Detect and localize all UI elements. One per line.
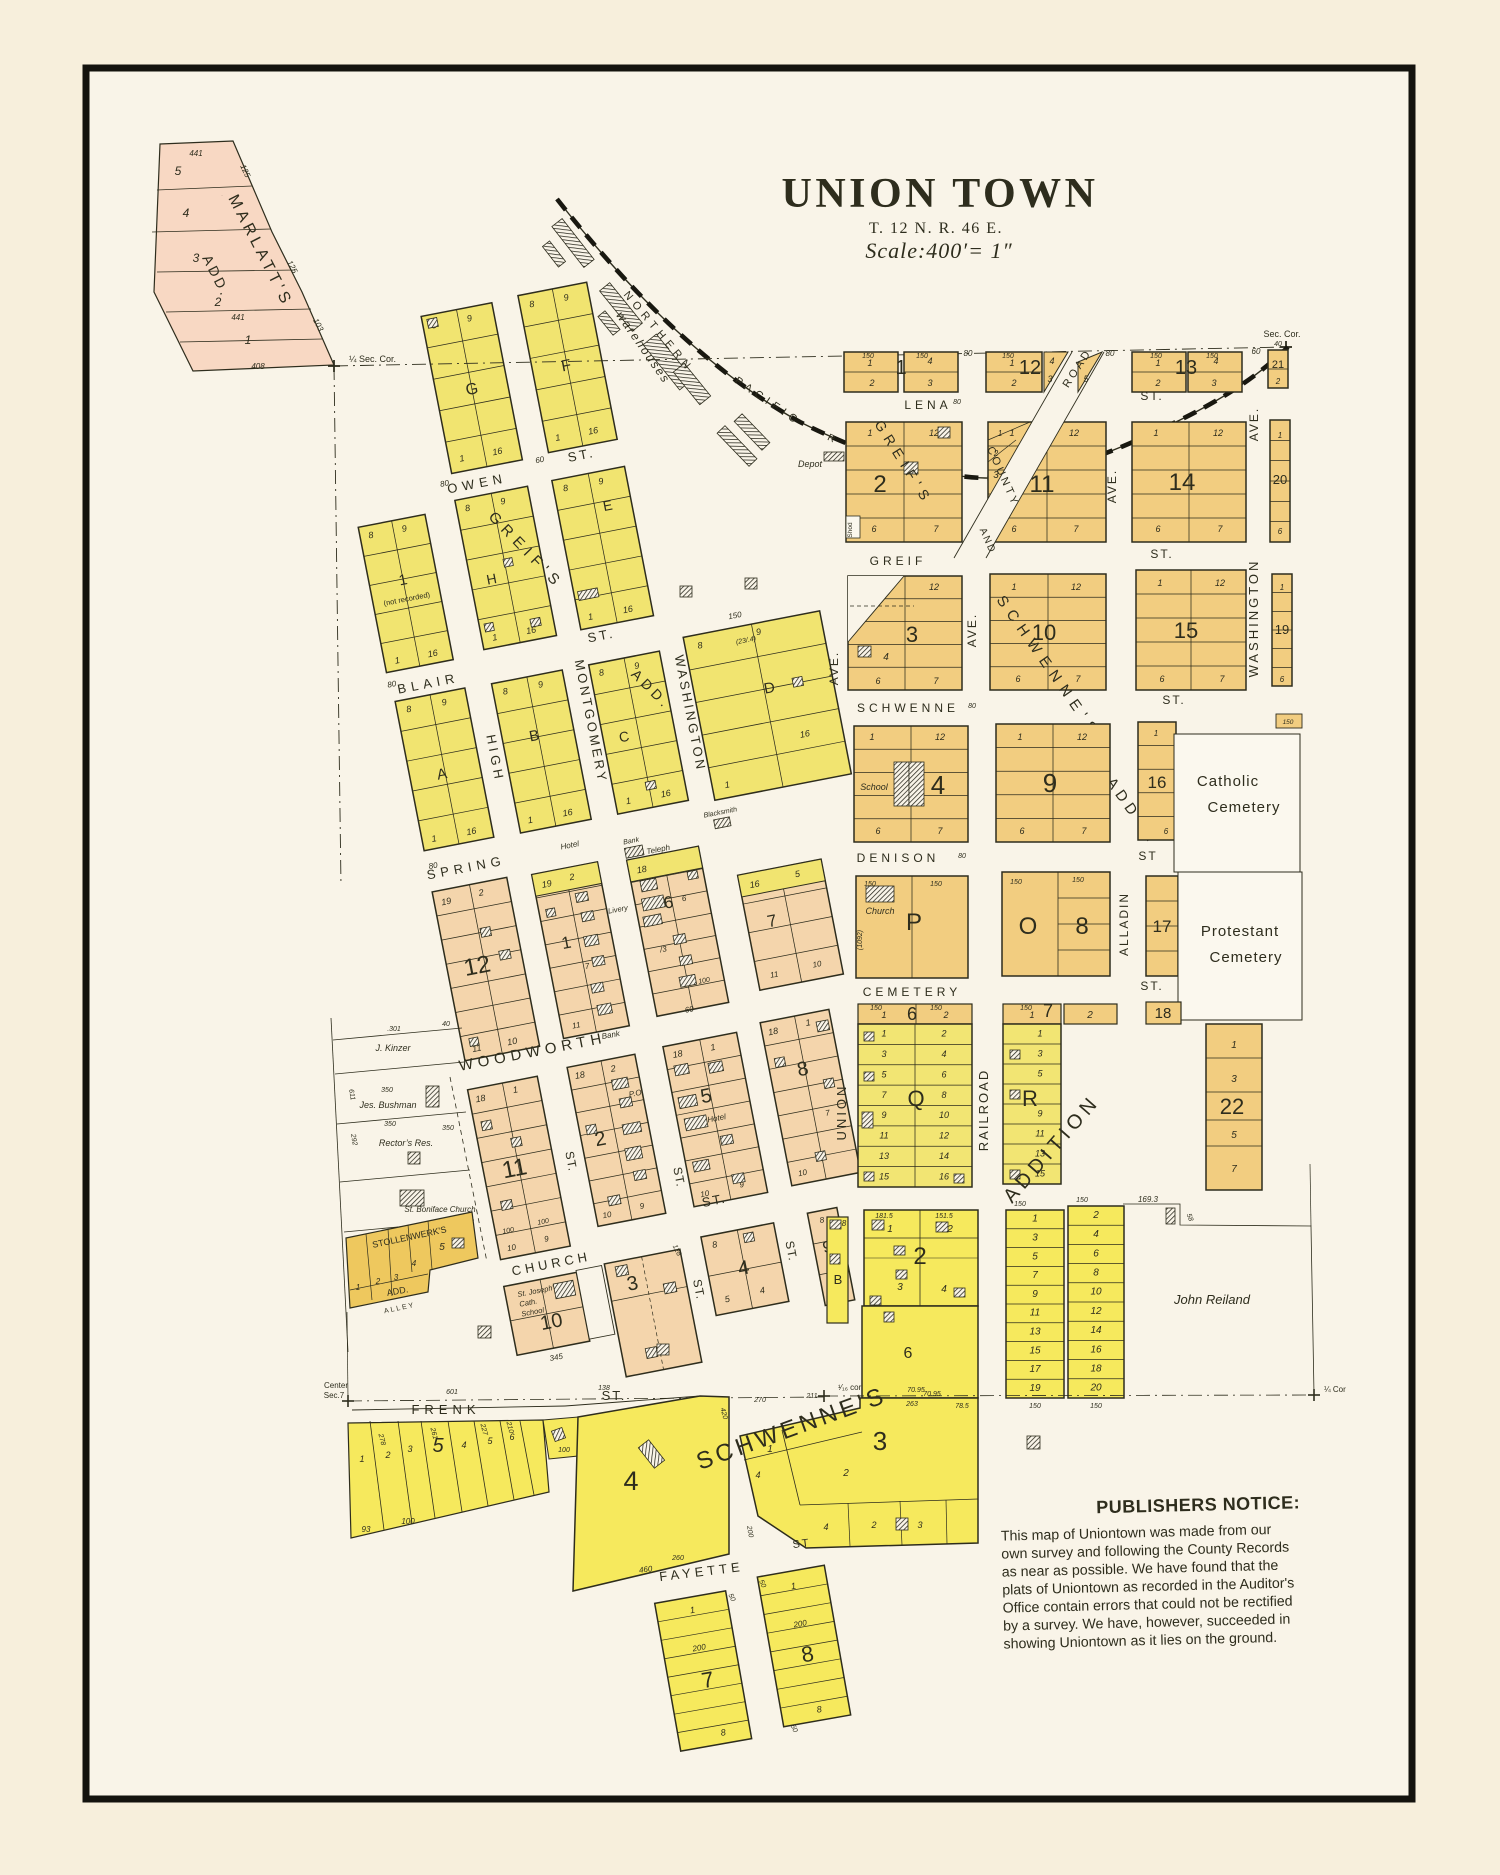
svg-text:John Reiland: John Reiland: [1173, 1292, 1251, 1307]
svg-text:UNION: UNION: [834, 1084, 849, 1141]
svg-text:150: 150: [870, 1005, 882, 1012]
svg-text:2: 2: [868, 378, 874, 388]
svg-text:3: 3: [927, 378, 932, 388]
svg-text:441: 441: [189, 149, 202, 158]
svg-text:ST.: ST.: [1140, 979, 1163, 993]
svg-text:5: 5: [1231, 1130, 1237, 1141]
svg-text:4: 4: [623, 1466, 638, 1496]
svg-text:14: 14: [1090, 1325, 1102, 1336]
svg-text:4: 4: [755, 1470, 760, 1480]
svg-text:5: 5: [439, 1242, 445, 1253]
svg-text:12: 12: [1077, 732, 1087, 742]
svg-text:211: 211: [805, 1393, 817, 1400]
svg-text:13: 13: [1029, 1326, 1041, 1337]
svg-text:ST.: ST.: [1150, 547, 1173, 561]
svg-text:4: 4: [183, 206, 190, 220]
svg-text:Sec. Cor.: Sec. Cor.: [1263, 329, 1300, 339]
svg-text:16: 16: [465, 825, 477, 837]
svg-text:1: 1: [887, 1224, 893, 1235]
svg-text:School: School: [860, 782, 889, 792]
svg-text:DENISON: DENISON: [857, 851, 940, 865]
svg-text:20: 20: [1273, 472, 1287, 487]
svg-text:R: R: [1022, 1086, 1038, 1111]
svg-text:70.95: 70.95: [907, 1387, 925, 1394]
svg-text:150: 150: [1020, 1005, 1032, 1012]
svg-text:150: 150: [1029, 1403, 1041, 1410]
svg-text:460: 460: [638, 1564, 653, 1575]
svg-text:150: 150: [1206, 353, 1218, 360]
svg-text:2: 2: [842, 1468, 849, 1479]
svg-text:6: 6: [871, 524, 876, 534]
svg-text:441: 441: [231, 313, 244, 322]
svg-text:¼ Sec. Cor.: ¼ Sec. Cor.: [349, 354, 396, 364]
svg-text:15: 15: [1029, 1345, 1041, 1356]
svg-text:263: 263: [905, 1401, 918, 1408]
svg-text:2: 2: [1086, 1010, 1093, 1021]
svg-text:12: 12: [461, 950, 492, 982]
svg-text:8: 8: [1075, 913, 1088, 940]
svg-text:3: 3: [1211, 378, 1216, 388]
svg-text:93: 93: [362, 1525, 371, 1534]
svg-text:2: 2: [870, 1520, 876, 1530]
svg-text:18: 18: [767, 1026, 779, 1038]
svg-text:100: 100: [401, 1517, 415, 1526]
svg-text:14: 14: [939, 1151, 949, 1161]
svg-text:40: 40: [442, 1021, 450, 1028]
svg-text:4: 4: [823, 1522, 828, 1532]
svg-text:17: 17: [1153, 917, 1172, 936]
svg-text:150: 150: [1150, 353, 1162, 360]
svg-text:181.5: 181.5: [875, 1213, 893, 1220]
svg-text:80: 80: [958, 853, 966, 860]
svg-text:350: 350: [384, 1121, 396, 1128]
svg-text:150: 150: [930, 1005, 942, 1012]
svg-text:9: 9: [1032, 1289, 1038, 1300]
svg-text:3: 3: [881, 1049, 886, 1059]
svg-text:11: 11: [1030, 1308, 1040, 1319]
svg-text:1: 1: [359, 1454, 364, 1464]
svg-text:80: 80: [968, 703, 976, 710]
svg-text:1: 1: [881, 1010, 886, 1020]
svg-text:3: 3: [873, 1426, 887, 1456]
svg-text:19: 19: [1275, 622, 1289, 637]
svg-text:16: 16: [427, 648, 439, 660]
svg-text:ALLADIN: ALLADIN: [1117, 892, 1131, 956]
svg-text:1: 1: [356, 1283, 360, 1292]
svg-text:Cemetery: Cemetery: [1209, 949, 1282, 966]
svg-text:6: 6: [1011, 524, 1016, 534]
svg-text:151.5: 151.5: [935, 1213, 953, 1220]
svg-text:80: 80: [953, 399, 961, 406]
svg-text:ST: ST: [1138, 849, 1157, 863]
svg-text:7: 7: [1032, 1270, 1038, 1281]
svg-text:12: 12: [1069, 428, 1079, 438]
svg-text:1: 1: [1153, 428, 1158, 438]
svg-text:FRENK: FRENK: [411, 1402, 480, 1417]
svg-text:9: 9: [1043, 768, 1057, 798]
svg-text:150: 150: [1072, 877, 1084, 884]
svg-text:16: 16: [562, 807, 574, 819]
svg-text:Scale:400′= 1″: Scale:400′= 1″: [865, 238, 1012, 263]
svg-text:5: 5: [175, 164, 182, 178]
svg-text:.301: .301: [387, 1026, 401, 1033]
svg-text:3: 3: [1047, 374, 1052, 384]
svg-text:3: 3: [1032, 1232, 1038, 1243]
svg-text:2: 2: [1092, 1210, 1099, 1221]
svg-text:15: 15: [879, 1171, 890, 1181]
svg-text:4: 4: [941, 1049, 946, 1059]
svg-text:T. 12 N. R. 46 E.: T. 12 N. R. 46 E.: [869, 220, 1003, 237]
svg-text:11: 11: [879, 1131, 888, 1141]
svg-text:4: 4: [461, 1440, 466, 1450]
svg-text:2: 2: [942, 1010, 948, 1020]
svg-text:13: 13: [879, 1151, 889, 1161]
svg-text:150: 150: [930, 881, 942, 888]
svg-text:4: 4: [412, 1259, 417, 1268]
svg-text:18: 18: [574, 1069, 586, 1081]
svg-text:AVE.: AVE.: [1105, 469, 1119, 503]
svg-text:8: 8: [842, 1219, 847, 1228]
svg-text:1: 1: [1032, 1214, 1038, 1225]
svg-text:3: 3: [897, 1282, 903, 1293]
svg-text:2: 2: [1154, 378, 1160, 388]
svg-text:16: 16: [799, 728, 811, 740]
svg-text:1: 1: [1157, 578, 1162, 588]
svg-text:8: 8: [941, 1090, 946, 1100]
svg-text:12: 12: [1213, 428, 1223, 438]
svg-text:19: 19: [541, 878, 553, 890]
svg-text:8: 8: [1093, 1268, 1099, 1279]
svg-text:6: 6: [875, 676, 880, 686]
svg-text:6: 6: [509, 1432, 514, 1442]
svg-text:2: 2: [375, 1277, 381, 1286]
svg-text:169.3: 169.3: [1138, 1195, 1159, 1204]
svg-text:12: 12: [939, 1131, 949, 1141]
svg-text:1: 1: [1017, 732, 1022, 742]
svg-text:RAILROAD: RAILROAD: [976, 1069, 991, 1151]
svg-text:19: 19: [1029, 1383, 1041, 1394]
svg-text:22: 22: [1220, 1094, 1244, 1119]
svg-text:4: 4: [931, 770, 945, 800]
svg-text:B: B: [834, 1272, 843, 1287]
svg-text:P: P: [906, 909, 922, 936]
svg-text:3: 3: [993, 470, 999, 481]
svg-text:9: 9: [1037, 1108, 1042, 1118]
svg-text:18: 18: [1090, 1364, 1102, 1375]
svg-text:Church: Church: [865, 906, 894, 916]
svg-text:2: 2: [1010, 378, 1016, 388]
svg-text:16: 16: [587, 425, 599, 437]
svg-text:AVE.: AVE.: [965, 613, 979, 647]
svg-text:Shod: Shod: [847, 522, 854, 538]
svg-text:2: 2: [384, 1450, 390, 1460]
svg-text:150: 150: [1283, 719, 1294, 726]
svg-text:1: 1: [1278, 431, 1282, 440]
svg-text:16: 16: [622, 604, 634, 616]
svg-text:16: 16: [749, 878, 761, 890]
svg-text:150: 150: [864, 881, 876, 888]
svg-text:80: 80: [1106, 349, 1115, 358]
svg-text:16: 16: [491, 446, 503, 458]
svg-text:12: 12: [929, 582, 939, 592]
svg-text:1: 1: [245, 333, 252, 347]
svg-text:150: 150: [862, 353, 874, 360]
svg-text:Protestant: Protestant: [1201, 923, 1279, 940]
svg-text:3: 3: [394, 1273, 399, 1282]
svg-text:21: 21: [1272, 359, 1284, 371]
svg-text:7: 7: [1043, 1001, 1053, 1021]
svg-text:18: 18: [475, 1093, 487, 1105]
svg-text:138: 138: [598, 1385, 610, 1392]
svg-text:150: 150: [1090, 1403, 1102, 1410]
svg-text:12: 12: [1071, 582, 1081, 592]
svg-text:4: 4: [927, 356, 932, 366]
svg-text:3: 3: [407, 1444, 412, 1454]
svg-text:11: 11: [1035, 1128, 1044, 1138]
svg-text:2: 2: [913, 1243, 926, 1270]
svg-text:16: 16: [1148, 773, 1167, 792]
svg-text:Q: Q: [907, 1086, 924, 1111]
svg-text:12: 12: [935, 732, 945, 742]
svg-text:270: 270: [753, 1397, 766, 1404]
svg-text:AVE.: AVE.: [827, 651, 841, 685]
svg-text:O: O: [1019, 913, 1038, 940]
svg-text:3: 3: [1231, 1074, 1237, 1085]
svg-text:(1092): (1092): [857, 930, 864, 950]
svg-text:1: 1: [1280, 583, 1284, 592]
svg-text:3: 3: [917, 1520, 922, 1530]
svg-text:LENA: LENA: [904, 398, 951, 412]
svg-text:80: 80: [964, 349, 973, 358]
svg-text:CEMETERY: CEMETERY: [863, 985, 961, 999]
svg-text:15: 15: [1174, 618, 1198, 643]
svg-text:408: 408: [251, 362, 265, 371]
svg-text:10: 10: [1090, 1287, 1102, 1298]
svg-text:Depot: Depot: [798, 459, 823, 469]
svg-text:60: 60: [1252, 347, 1261, 356]
svg-text:WASHINGTON: WASHINGTON: [1246, 559, 1261, 678]
svg-text:6: 6: [875, 826, 880, 836]
svg-text:11: 11: [571, 1020, 581, 1030]
svg-text:19: 19: [440, 896, 452, 908]
svg-text:6: 6: [1155, 524, 1160, 534]
svg-text:18: 18: [636, 864, 648, 876]
svg-text:9: 9: [881, 1110, 886, 1120]
svg-text:350: 350: [442, 1125, 454, 1132]
svg-text:6: 6: [1093, 1248, 1099, 1259]
svg-text:10: 10: [939, 1110, 949, 1120]
svg-text:100: 100: [558, 1447, 570, 1454]
svg-text:2: 2: [1275, 377, 1281, 386]
svg-text:260: 260: [671, 1555, 684, 1562]
svg-text:40: 40: [1274, 341, 1282, 348]
svg-text:UNION TOWN: UNION TOWN: [781, 171, 1098, 217]
svg-text:1: 1: [1154, 729, 1158, 738]
svg-text:ST.: ST.: [1140, 389, 1163, 403]
svg-text:2: 2: [873, 471, 886, 498]
svg-text:3: 3: [193, 251, 200, 265]
svg-text:4: 4: [883, 652, 889, 663]
svg-text:Cemetery: Cemetery: [1207, 799, 1280, 816]
svg-text:12: 12: [1019, 357, 1041, 379]
svg-text:7: 7: [1231, 1164, 1237, 1175]
svg-text:St. Boniface Church: St. Boniface Church: [404, 1205, 476, 1214]
svg-text:601: 601: [446, 1389, 458, 1396]
svg-text:Sec.7: Sec.7: [324, 1391, 345, 1400]
svg-text:3: 3: [1037, 1048, 1042, 1058]
svg-text:18: 18: [1155, 1005, 1172, 1022]
svg-text:11: 11: [500, 1153, 530, 1184]
svg-text:ST: ST: [792, 1537, 811, 1551]
svg-text:2: 2: [940, 1029, 946, 1039]
svg-text:Catholic: Catholic: [1197, 773, 1259, 790]
svg-text:GREIF: GREIF: [870, 554, 927, 568]
svg-text:18: 18: [672, 1048, 684, 1060]
svg-text:6: 6: [941, 1069, 946, 1079]
svg-text:SCHWENNE: SCHWENNE: [857, 701, 959, 715]
svg-text:12: 12: [1215, 578, 1225, 588]
svg-text:2: 2: [993, 449, 999, 458]
svg-text:12: 12: [1090, 1306, 1102, 1317]
svg-text:17: 17: [1029, 1364, 1041, 1375]
svg-text:6: 6: [1159, 674, 1164, 684]
svg-text:150: 150: [1076, 1197, 1088, 1204]
svg-text:6: 6: [1280, 675, 1285, 684]
svg-text:Center: Center: [324, 1381, 348, 1390]
svg-text:150: 150: [1002, 353, 1014, 360]
svg-text:4: 4: [1093, 1229, 1099, 1240]
svg-text:6: 6: [1164, 827, 1169, 836]
svg-text:150: 150: [916, 353, 928, 360]
svg-text:350: 350: [381, 1087, 393, 1094]
svg-text:1: 1: [1011, 582, 1016, 592]
svg-text:¼ Cor: ¼ Cor: [1324, 1385, 1346, 1394]
svg-text:Jes. Bushman: Jes. Bushman: [358, 1100, 416, 1110]
svg-text:4: 4: [1049, 356, 1054, 366]
svg-text:1: 1: [881, 1029, 886, 1039]
svg-text:6: 6: [904, 1345, 913, 1362]
svg-text:J. Kinzer: J. Kinzer: [374, 1043, 411, 1053]
svg-text:1: 1: [867, 428, 872, 438]
svg-text:Rector’s Res.: Rector’s Res.: [379, 1138, 433, 1148]
svg-text:12: 12: [929, 428, 939, 438]
svg-text:13: 13: [1175, 357, 1197, 379]
svg-text:16: 16: [1090, 1344, 1102, 1355]
svg-text:AVE.: AVE.: [1247, 407, 1261, 441]
svg-text:4: 4: [941, 1284, 947, 1295]
svg-text:10: 10: [506, 1036, 518, 1048]
svg-text:70.95: 70.95: [923, 1391, 941, 1398]
svg-text:20: 20: [1089, 1383, 1102, 1394]
svg-text:78.5: 78.5: [955, 1403, 969, 1410]
svg-text:1: 1: [998, 429, 1002, 438]
svg-text:3: 3: [906, 622, 918, 647]
svg-text:150: 150: [1010, 879, 1022, 886]
svg-text:6: 6: [1278, 527, 1283, 536]
svg-text:1: 1: [1231, 1040, 1237, 1051]
svg-text:6: 6: [907, 1004, 917, 1024]
svg-text:16: 16: [939, 1171, 949, 1181]
svg-text:6: 6: [1019, 826, 1024, 836]
svg-text:5: 5: [1032, 1251, 1038, 1262]
svg-text:1: 1: [869, 732, 874, 742]
svg-text:ST.: ST.: [1162, 693, 1185, 707]
svg-text:16: 16: [660, 788, 672, 800]
svg-text:11: 11: [769, 969, 779, 979]
svg-text:1: 1: [1037, 1028, 1042, 1038]
svg-text:6: 6: [1015, 674, 1020, 684]
svg-text:14: 14: [1169, 469, 1196, 496]
svg-text:1: 1: [895, 357, 906, 379]
